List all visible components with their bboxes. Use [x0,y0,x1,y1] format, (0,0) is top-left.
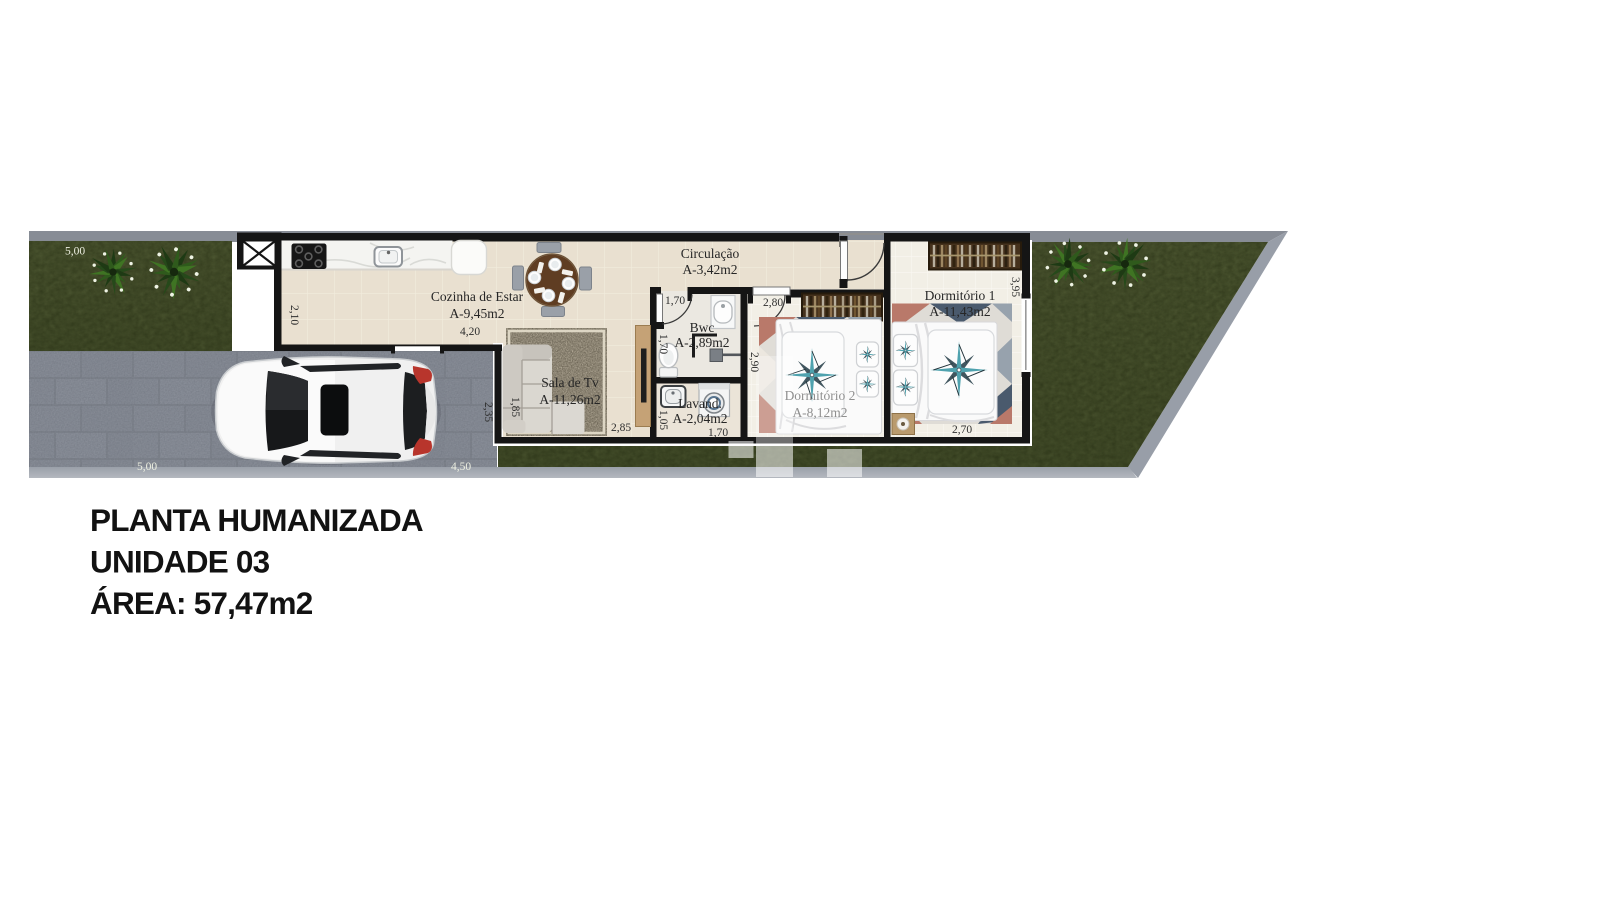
svg-text:3,95: 3,95 [1009,277,1021,297]
svg-text:Sala de Tv: Sala de Tv [541,375,599,390]
svg-text:Cozinha de Estar: Cozinha de Estar [431,289,524,304]
svg-text:2,90: 2,90 [748,352,760,372]
svg-text:A-2,89m2: A-2,89m2 [674,335,729,350]
svg-text:A-11,26m2: A-11,26m2 [539,392,600,407]
svg-text:1,70: 1,70 [657,334,669,354]
svg-text:4,50: 4,50 [451,461,471,473]
svg-text:Bwc: Bwc [690,320,715,335]
svg-text:1,05: 1,05 [657,410,669,430]
svg-text:5,00: 5,00 [137,461,157,473]
svg-text:5,00: 5,00 [65,246,85,258]
svg-text:2,35: 2,35 [482,402,494,422]
svg-text:UNIDADE 03: UNIDADE 03 [90,544,270,580]
svg-text:A-8,12m2: A-8,12m2 [792,405,847,420]
svg-text:1,70: 1,70 [708,427,728,439]
svg-text:2,70: 2,70 [952,424,972,436]
svg-text:4,20: 4,20 [460,326,480,338]
svg-text:1,85: 1,85 [509,397,521,417]
svg-text:ÁREA: 57,47m2: ÁREA: 57,47m2 [90,585,313,621]
svg-text:Lavand.: Lavand. [678,396,722,411]
svg-text:A-3,42m2: A-3,42m2 [682,262,737,277]
svg-text:2,10: 2,10 [288,305,300,325]
svg-text:PLANTA HUMANIZADA: PLANTA HUMANIZADA [90,502,423,538]
svg-text:1,70: 1,70 [665,295,685,307]
svg-text:Circulação: Circulação [681,246,740,261]
svg-text:A-9,45m2: A-9,45m2 [449,306,504,321]
svg-text:2,80: 2,80 [763,297,783,309]
svg-text:2,85: 2,85 [611,422,631,434]
svg-text:Dormitório 2: Dormitório 2 [785,388,856,403]
svg-text:A-11,43m2: A-11,43m2 [929,304,990,319]
svg-text:Dormitório 1: Dormitório 1 [925,288,996,303]
svg-text:A-2,04m2: A-2,04m2 [672,411,727,426]
